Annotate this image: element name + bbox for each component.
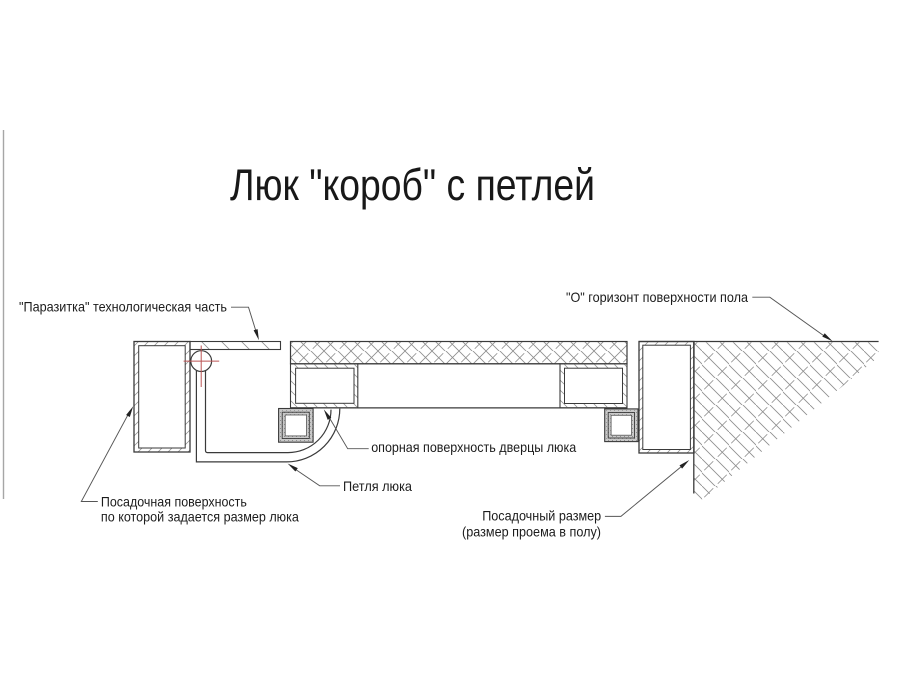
svg-text:Посадочный размер: Посадочный размер (482, 508, 601, 523)
svg-text:Посадочная поверхность: Посадочная поверхность (101, 495, 247, 510)
svg-text:"Паразитка" технологическая ча: "Паразитка" технологическая часть (19, 300, 227, 315)
svg-text:опорная поверхность дверцы люк: опорная поверхность дверцы люка (371, 440, 576, 455)
svg-text:"О" горизонт поверхности пола: "О" горизонт поверхности пола (566, 290, 748, 305)
svg-text:(размер проема в полу): (размер проема в полу) (462, 525, 601, 540)
svg-text:Петля люка: Петля люка (343, 479, 412, 494)
svg-text:по которой задается размер люк: по которой задается размер люка (101, 510, 299, 525)
svg-text:Люк "короб" с петлей: Люк "короб" с петлей (230, 161, 595, 210)
